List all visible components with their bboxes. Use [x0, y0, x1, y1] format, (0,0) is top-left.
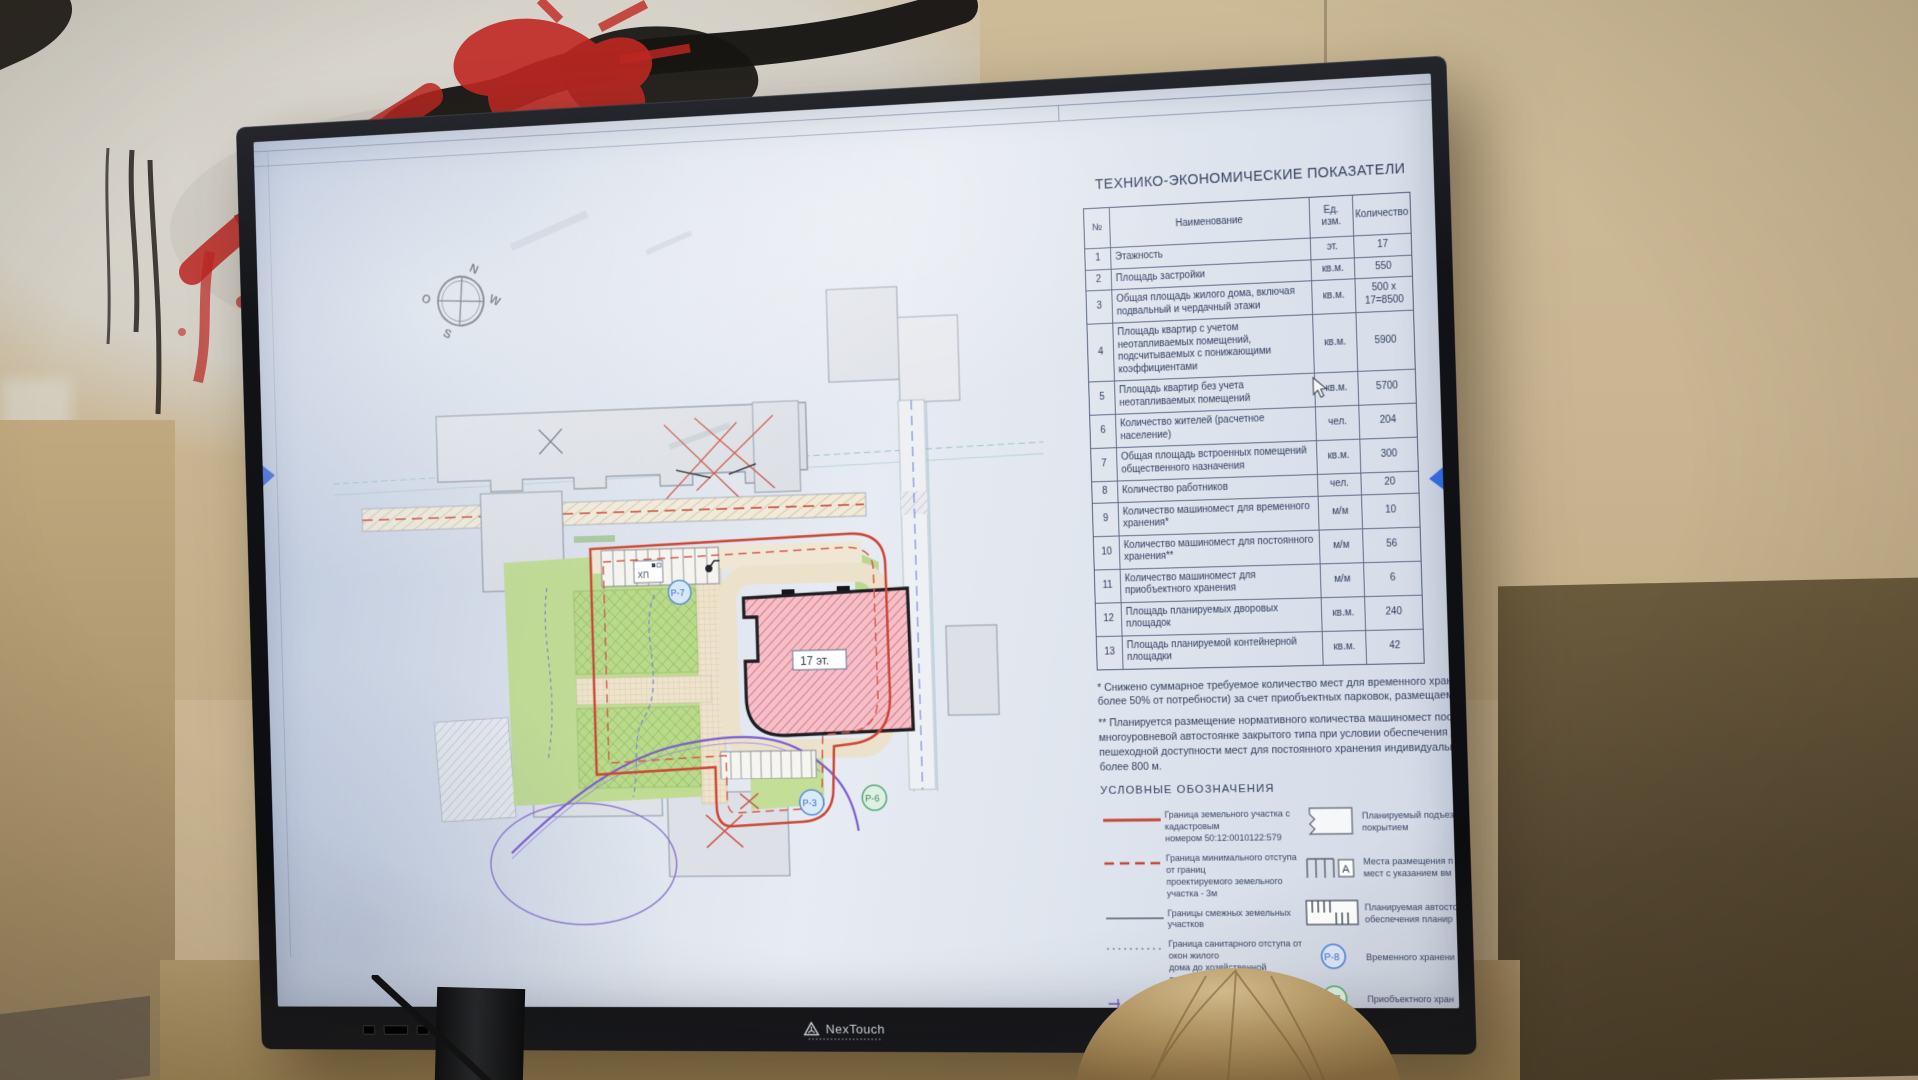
- cell-name: Количество машиномест для постоянного хр…: [1119, 530, 1320, 568]
- cell-unit: чел.: [1315, 406, 1359, 440]
- teo-panel: ТЕХНИКО-ЭКОНОМИЧЕСКИЕ ПОКАЗАТЕЛИ №Наимен…: [1082, 153, 1459, 797]
- site-plan: N W O S: [274, 163, 1092, 957]
- cell-qty: 56: [1362, 527, 1421, 562]
- brand-logo: NexTouch: [803, 1022, 885, 1041]
- turning-circle: [489, 802, 678, 925]
- person-head: [1056, 962, 1416, 1080]
- cell-unit: м/м: [1319, 529, 1363, 563]
- svg-text:Р-7: Р-7: [670, 588, 684, 599]
- cell-unit: кв.м.: [1311, 279, 1355, 314]
- cell-unit: эт.: [1310, 236, 1354, 258]
- cell-num: 11: [1095, 569, 1121, 602]
- legend-item: Граница земельного участка с кадастровым…: [1101, 808, 1301, 845]
- legend-title: УСЛОВНЫЕ ОБОЗНАЧЕНИЯ: [1100, 779, 1459, 797]
- footnotes: * Снижено суммарное требуемое количество…: [1097, 671, 1459, 775]
- photo-scene: N W O S: [0, 0, 1918, 1080]
- compass-s: S: [441, 326, 453, 342]
- cell-qty: 240: [1364, 595, 1423, 629]
- legend-item-label: Границы смежных земельных участков: [1167, 907, 1303, 931]
- cell-qty: 20: [1360, 472, 1418, 494]
- dashed-red-line-icon: [1102, 853, 1166, 876]
- cell-unit: чел.: [1317, 474, 1361, 496]
- badge-p6: Р-6: [862, 785, 887, 810]
- wall-seam: [1324, 0, 1327, 66]
- legend-item-label: Граница земельного участка с кадастровым…: [1164, 808, 1300, 845]
- power-cable: [330, 975, 530, 1080]
- legend-item: Границы смежных земельных участков: [1104, 907, 1303, 931]
- cell-qty: 204: [1358, 404, 1417, 439]
- parking-row-bottom: [721, 750, 817, 778]
- hp-label: ХП: [637, 570, 648, 580]
- drawing-frame-tick: [1058, 105, 1059, 121]
- cell-qty: 10: [1361, 493, 1420, 528]
- parking-a-icon: А: [1302, 849, 1364, 888]
- cell-qty: 500 x 17=8500: [1354, 277, 1413, 312]
- cell-qty: 5900: [1355, 311, 1414, 371]
- cell-name: Площадь планируемой контейнерной площадк…: [1122, 632, 1323, 669]
- cell-num: 1: [1085, 248, 1110, 269]
- header-cell-qty: Количество: [1352, 193, 1411, 236]
- footnote-paragraph: ** Планируется размещение нормативного к…: [1098, 708, 1459, 775]
- cell-qty: 42: [1365, 629, 1424, 663]
- teo-table: №НаименованиеЕд. изм.Количество1Этажност…: [1083, 192, 1425, 670]
- teo-title: ТЕХНИКО-ЭКОНОМИЧЕСКИЕ ПОКАЗАТЕЛИ: [1082, 160, 1419, 193]
- cell-unit: кв.м.: [1322, 631, 1366, 665]
- svg-text:А: А: [1342, 863, 1350, 876]
- cell-name: Количество машиномест для приобъектного …: [1120, 564, 1321, 602]
- existing-building-long: [436, 402, 808, 493]
- svg-text:Р-6: Р-6: [865, 793, 880, 804]
- cell-qty: 5700: [1357, 370, 1416, 405]
- cell-qty: 6: [1363, 561, 1422, 595]
- footnote-paragraph: * Снижено суммарное требуемое количество…: [1097, 671, 1459, 710]
- cell-num: 3: [1086, 290, 1112, 323]
- cell-qty: 300: [1359, 438, 1418, 473]
- cell-unit: м/м: [1320, 563, 1364, 597]
- dotted-gray-line-icon: [1105, 939, 1169, 962]
- brand-name: NexTouch: [825, 1022, 885, 1037]
- cell-unit: м/м: [1318, 495, 1362, 529]
- cell-name: Количество машиномест для временного хра…: [1118, 496, 1319, 535]
- road-outline-icon: [1300, 804, 1362, 843]
- cell-num: 9: [1093, 503, 1119, 536]
- cell-num: 2: [1086, 269, 1111, 290]
- legend: УСЛОВНЫЕ ОБОЗНАЧЕНИЯ Граница земельного …: [1100, 779, 1459, 797]
- brand-subtext: [808, 1038, 880, 1040]
- compass-rose: N W O S: [411, 247, 510, 355]
- screen[interactable]: N W O S: [254, 73, 1460, 1008]
- legend-item-label: Планируемая автосто обеспечения планир: [1364, 902, 1459, 927]
- parking-row: ХП: [601, 547, 719, 586]
- cell-unit: кв.м.: [1316, 440, 1360, 474]
- hatched-zone: [434, 717, 516, 822]
- path: [576, 676, 712, 705]
- compass-n: N: [468, 261, 481, 277]
- compass-w: W: [487, 292, 502, 309]
- cell-num: 12: [1096, 603, 1122, 636]
- wall-lower-dark: [1498, 578, 1918, 1080]
- solid-red-line-icon: [1101, 810, 1165, 833]
- legend-item: АМеста размещения п мест с указанием вм: [1302, 848, 1460, 889]
- interactive-display: N W O S: [236, 55, 1477, 1054]
- header-cell-num: №: [1084, 208, 1110, 248]
- existing-building: [946, 625, 999, 715]
- building-floors-label: 17 эт.: [800, 653, 829, 668]
- existing-building: [826, 287, 899, 383]
- cell-qty: 550: [1354, 255, 1412, 278]
- cell-unit: кв.м.: [1314, 372, 1358, 406]
- svg-text:Р-3: Р-3: [802, 798, 817, 809]
- badge-p7: Р-7: [668, 580, 691, 604]
- cell-num: 6: [1090, 415, 1116, 448]
- legend-item: Планируемая автосто обеспечения планир: [1303, 894, 1459, 934]
- cell-unit: кв.м.: [1312, 313, 1357, 372]
- faint-stamp-marks: [509, 205, 693, 262]
- cell-unit: кв.м.: [1310, 258, 1354, 280]
- compass-o: O: [420, 291, 434, 307]
- legend-item-label: Места размещения п мест с указанием вм: [1363, 855, 1459, 880]
- cell-unit: кв.м.: [1321, 597, 1365, 631]
- nextouch-logo-icon: [803, 1022, 819, 1036]
- cell-num: 13: [1097, 636, 1123, 669]
- cell-num: 5: [1089, 382, 1115, 415]
- cell-qty: 17: [1353, 234, 1411, 257]
- parking-box-icon: [1303, 895, 1365, 934]
- cell-num: 8: [1092, 482, 1117, 503]
- cell-num: 10: [1094, 536, 1120, 569]
- cell-name: Площадь квартир с учетом неотапливаемых …: [1112, 315, 1314, 380]
- wall-left: [0, 420, 175, 1080]
- header-cell-unit: Ед. изм.: [1309, 196, 1354, 238]
- legend-item: Планируемый подъезд покрытием: [1300, 801, 1459, 843]
- legend-item-label: Планируемый подъезд покрытием: [1362, 809, 1460, 835]
- cell-num: 7: [1091, 448, 1117, 481]
- legend-item-label: Граница минимального отступа от границ п…: [1166, 852, 1303, 900]
- existing-building: [752, 401, 800, 493]
- cell-num: 4: [1087, 324, 1114, 382]
- cell-name: Площадь планируемых дворовых площадок: [1121, 598, 1322, 635]
- display-bezel: N W O S: [236, 55, 1477, 1054]
- existing-building: [897, 315, 959, 403]
- legend-item: Граница минимального отступа от границ п…: [1102, 852, 1302, 901]
- badge-p3: Р-3: [799, 790, 824, 815]
- cell-name: Общая площадь встроенных помещений общес…: [1116, 441, 1317, 480]
- solid-dark-line-icon: [1104, 908, 1168, 931]
